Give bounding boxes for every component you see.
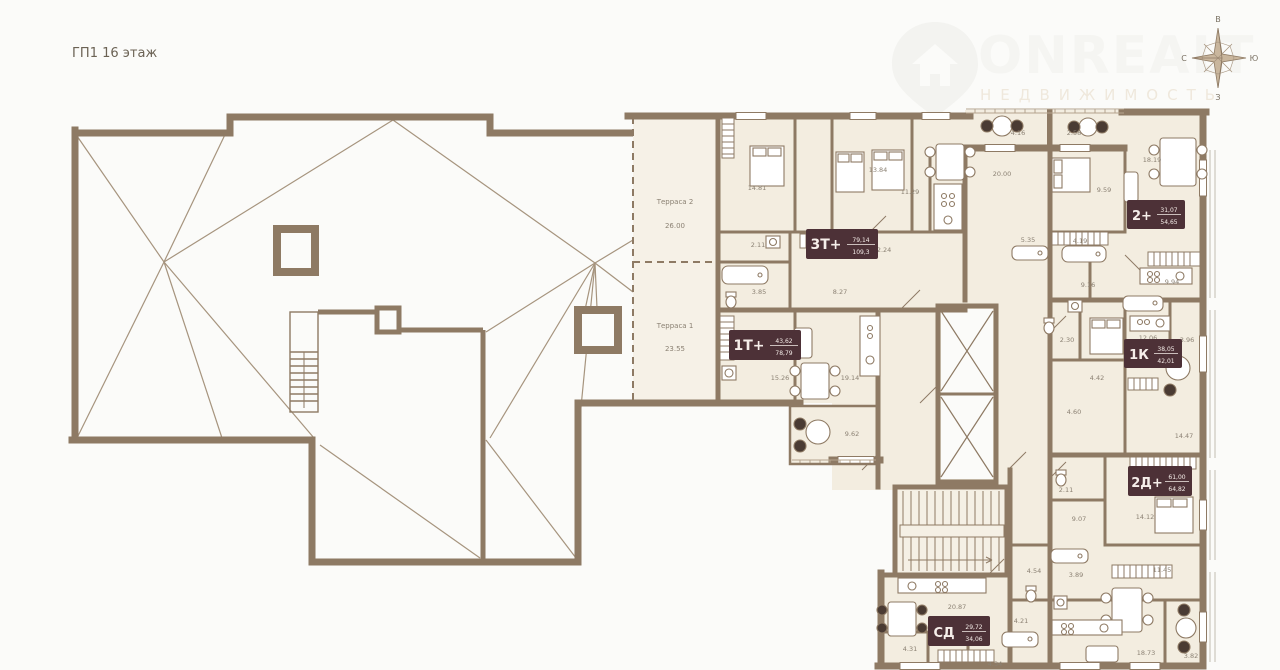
kitchen-counter	[1130, 316, 1170, 331]
room-area-label: 20.87	[948, 603, 967, 611]
apartment-total-area: 64,82	[1168, 486, 1185, 493]
sink	[766, 236, 780, 248]
room-area-label: 13.84	[869, 166, 888, 174]
room-area-label: 14.47	[1175, 432, 1194, 440]
terrace-area: 23.55	[665, 345, 685, 353]
apartment-living-area: 79,14	[852, 237, 869, 244]
floorplan-page: ГП1 16 этаж ONREALT НЕДВИЖИМОСТЬ	[0, 0, 1280, 670]
bathtub	[1012, 246, 1048, 260]
room-area-label: 20.00	[993, 170, 1012, 178]
terrace-area: 26.00	[665, 222, 685, 230]
room-area-label: 9.94	[1165, 278, 1179, 286]
room-area-label: 9.59	[1097, 186, 1111, 194]
room-area-label: 18.19	[1143, 156, 1162, 164]
apartment-badge: 1К 38,05 42,01	[1124, 339, 1182, 368]
room-area-label: 3.85	[752, 288, 766, 296]
apartment-code: СД	[933, 626, 954, 641]
room-area-label: 9.16	[1081, 281, 1095, 289]
room-area-label: 18.73	[1137, 649, 1156, 657]
room-area-label: 4.16	[1011, 129, 1025, 137]
room-area-label: 4.21	[1014, 617, 1028, 625]
apartment-living-area: 38,05	[1157, 346, 1174, 353]
room-area-label: 19.14	[841, 374, 860, 382]
bed	[1052, 158, 1090, 192]
apartment-code: 1К	[1129, 348, 1149, 363]
compass-left-label: С	[1181, 54, 1187, 63]
roof-shaft	[578, 310, 618, 350]
room-area-label: 2.11	[751, 241, 765, 249]
terrace-name: Терраса 1	[656, 322, 694, 330]
room-area-label: 4.54	[1027, 567, 1041, 575]
apartment-total-area: 54,65	[1160, 219, 1177, 226]
room-area-label: 4.31	[903, 645, 917, 653]
roof-area	[72, 117, 636, 562]
room-area-label: 4.42	[1090, 374, 1104, 382]
wardrobe	[1128, 378, 1158, 390]
apartment-code: 1Т+	[733, 338, 764, 354]
room-area-label: 4.19	[1073, 237, 1087, 245]
toilet	[1026, 586, 1036, 602]
room-area-label: 2.58	[1067, 129, 1081, 137]
apartment-badge: 2+ 31,07 54,65	[1127, 200, 1185, 229]
washing-machine	[722, 366, 736, 380]
bathtub	[1051, 549, 1088, 563]
room-area-label: 2.30	[1060, 336, 1074, 344]
wardrobe	[1148, 252, 1200, 266]
room-area-label: 3.82	[1184, 652, 1198, 660]
washing-machine	[1054, 596, 1067, 609]
room-area-label: 9.62	[845, 430, 859, 438]
apartment-living-area: 31,07	[1160, 207, 1177, 214]
room-area-label: 3.89	[1069, 571, 1083, 579]
toilet	[1056, 470, 1066, 486]
roof-inner-walls	[318, 308, 483, 560]
room-area-label: 4.60	[1067, 408, 1081, 416]
toilet	[726, 292, 736, 308]
room-area-label: 15.26	[771, 374, 790, 382]
apartment-badge: СД 29,72 34,06	[928, 616, 990, 646]
sofa	[1086, 646, 1118, 662]
wardrobe	[722, 118, 734, 158]
room-area-label: 8.27	[833, 288, 847, 296]
kitchen-counter	[898, 578, 986, 593]
apartment-total-area: 42,01	[1157, 358, 1174, 365]
bed	[750, 146, 784, 186]
compass-right-label: Ю	[1250, 54, 1259, 63]
apartment-total-area: 78,79	[775, 350, 792, 357]
kitchen-counter	[934, 184, 962, 230]
floor-plan-svg: Терраса 2 26.00 Терраса 1 23.55 14.81 13…	[0, 0, 1280, 670]
compass-top-label: В	[1215, 15, 1221, 24]
facade-railings	[1210, 150, 1215, 662]
apartment-code: 2+	[1132, 209, 1152, 224]
roof-hip-lines	[77, 120, 633, 558]
room-area-label: 14.81	[748, 184, 767, 192]
bed	[836, 152, 864, 192]
apartment-living-area: 43,62	[775, 338, 792, 345]
toilet	[1044, 318, 1054, 334]
terrace-name: Терраса 2	[656, 198, 694, 206]
bathtub	[1123, 296, 1163, 311]
apartment-code: 2Д+	[1131, 476, 1163, 491]
bathtub	[722, 266, 768, 284]
room-area-label: 11.45	[1153, 566, 1172, 574]
roof-shaft	[277, 229, 315, 272]
room-area-label: 14.12	[1136, 513, 1155, 521]
apartment-code: 3Т+	[810, 237, 841, 253]
apartment-badge: 1Т+ 43,62 78,79	[729, 330, 801, 360]
apartment-total-area: 109,3	[852, 249, 869, 256]
apartment-living-area: 29,72	[965, 624, 982, 631]
roof-stair	[290, 312, 318, 412]
roof-outer-walls	[72, 117, 636, 562]
sink	[1068, 300, 1082, 312]
apartment-living-area: 61,00	[1168, 474, 1185, 481]
room-area-label: 2.11	[1059, 486, 1073, 494]
apartment-badge: 2Д+ 61,00 64,82	[1128, 466, 1192, 496]
compass-bottom-label: З	[1215, 93, 1220, 102]
bed	[1155, 497, 1193, 533]
wardrobe	[938, 650, 994, 662]
sofa	[1124, 172, 1138, 202]
bed	[1090, 318, 1123, 354]
bathtub	[1002, 632, 1038, 647]
kitchen-counter	[860, 316, 880, 376]
apartment-badge: 3Т+ 79,14 109,3	[806, 229, 878, 259]
apartment-total-area: 34,06	[965, 636, 982, 643]
room-area-label: 4.34	[988, 660, 1002, 668]
room-area-label: 5.35	[1021, 236, 1035, 244]
bathtub	[1062, 246, 1106, 262]
compass-rose: В Ю З С	[1181, 15, 1258, 102]
kitchen-counter	[1052, 620, 1122, 635]
room-area-label: 11.29	[901, 188, 920, 196]
room-area-label: 9.07	[1072, 515, 1086, 523]
